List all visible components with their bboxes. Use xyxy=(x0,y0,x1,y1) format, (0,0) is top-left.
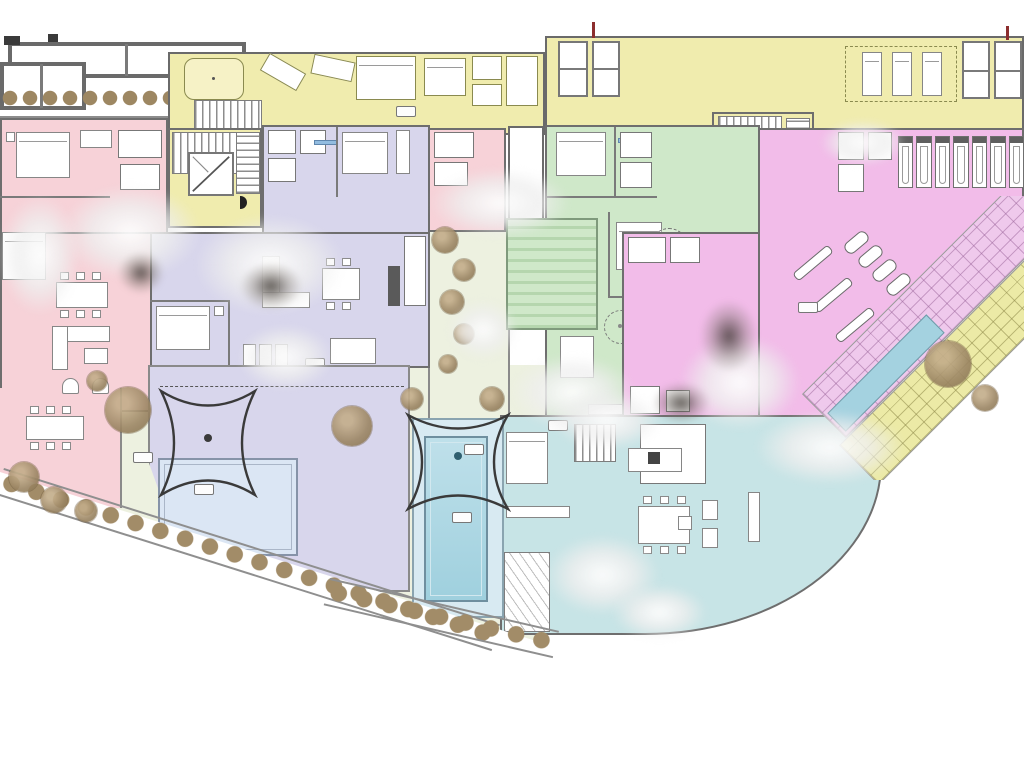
smudge-artifact-dark xyxy=(240,262,302,310)
tree-icon xyxy=(75,500,97,522)
sunbed xyxy=(862,52,882,96)
elevator xyxy=(188,152,234,196)
bed xyxy=(342,132,388,174)
tree-icon xyxy=(480,387,504,411)
smudge-artifact-dark xyxy=(700,300,758,372)
wardrobe xyxy=(80,130,112,148)
partition xyxy=(336,127,338,197)
room-label-chip xyxy=(194,484,214,495)
smudge-artifact xyxy=(0,195,80,315)
plant-room-shelf xyxy=(594,68,618,70)
nightstand xyxy=(6,132,15,142)
bed xyxy=(506,432,548,484)
chair xyxy=(62,442,71,450)
bed xyxy=(156,306,210,350)
shower-stall xyxy=(1009,136,1024,188)
chair xyxy=(326,302,335,310)
chair xyxy=(46,406,55,414)
shower-stall xyxy=(935,136,950,188)
bed xyxy=(556,132,606,176)
bathroom xyxy=(472,56,502,80)
chair xyxy=(342,302,351,310)
kitchen-counter xyxy=(388,266,400,306)
armchair xyxy=(702,528,718,548)
smudge-artifact xyxy=(448,300,518,360)
neighbour-mark-2 xyxy=(48,34,58,42)
shade-sail-icon xyxy=(405,412,511,512)
chair xyxy=(660,496,669,504)
tree-icon xyxy=(87,371,107,391)
tree-icon xyxy=(41,487,67,513)
bathroom xyxy=(620,132,652,158)
room-label-chip xyxy=(464,444,484,455)
survey-tick xyxy=(592,22,595,38)
tree-icon xyxy=(432,227,458,253)
shower-stall xyxy=(953,136,968,188)
tree-icon xyxy=(9,462,39,492)
side-table xyxy=(678,516,692,530)
coffee-table xyxy=(84,348,108,364)
wardrobe xyxy=(506,506,570,518)
survey-tick xyxy=(1006,26,1009,40)
bathroom xyxy=(620,162,652,188)
staff-bed xyxy=(356,56,416,100)
tree-icon xyxy=(972,385,998,411)
wardrobe xyxy=(396,130,410,174)
staff-bed xyxy=(424,58,466,96)
floor-plan-canvas: ♿ xyxy=(0,0,1024,768)
treatment-room xyxy=(670,237,700,263)
partition xyxy=(228,300,230,366)
tree-icon xyxy=(439,355,457,373)
stair-flight xyxy=(236,132,260,194)
plant-room-shelf xyxy=(560,68,586,70)
neighbour-wall xyxy=(125,44,128,76)
chair xyxy=(677,546,686,554)
plant-room-shelf xyxy=(964,70,988,72)
outdoor-table xyxy=(330,338,376,364)
smudge-artifact xyxy=(552,390,662,450)
chair xyxy=(660,546,669,554)
shower-stall xyxy=(972,136,987,188)
chair xyxy=(46,442,55,450)
smudge-artifact xyxy=(820,120,905,165)
room-label-chip xyxy=(452,512,472,523)
chair xyxy=(677,496,686,504)
smudge-artifact xyxy=(612,585,707,640)
tree-icon xyxy=(332,406,372,446)
chair xyxy=(30,442,39,450)
kitchen-unit xyxy=(404,236,426,306)
smudge-artifact xyxy=(430,168,570,238)
window-sill xyxy=(314,140,338,145)
chair xyxy=(60,310,69,318)
elevator-icon xyxy=(190,154,232,194)
chair xyxy=(92,310,101,318)
bed xyxy=(16,132,70,178)
nightstand xyxy=(214,306,224,316)
shower-stall-row xyxy=(898,136,1024,188)
treatment-room xyxy=(628,237,666,263)
shower-stall xyxy=(916,136,931,188)
bathroom xyxy=(268,130,296,154)
armchair xyxy=(702,500,718,520)
jacuzzi-drain-dot xyxy=(212,77,215,80)
tree-icon xyxy=(401,388,423,410)
room-label-chip xyxy=(133,452,153,463)
chair xyxy=(30,406,39,414)
tree-icon xyxy=(925,341,971,387)
shade-sail-icon xyxy=(158,388,258,498)
cabinet xyxy=(748,492,760,542)
shower-stall xyxy=(990,136,1005,188)
sofa xyxy=(52,326,68,370)
room-label-chip xyxy=(396,106,416,117)
smudge-artifact-dark xyxy=(118,252,164,294)
chair xyxy=(643,496,652,504)
partition xyxy=(608,212,610,298)
bathroom xyxy=(434,132,474,158)
sunbed xyxy=(892,52,912,96)
tree-icon xyxy=(105,387,151,433)
armchair xyxy=(62,378,79,394)
bathroom xyxy=(118,130,162,158)
outdoor-dining-table xyxy=(26,416,84,440)
bathroom xyxy=(472,84,502,106)
street-tree-row xyxy=(0,86,170,118)
chair xyxy=(62,406,71,414)
tree-icon xyxy=(453,259,475,281)
plant-room-shelf xyxy=(996,70,1020,72)
smudge-artifact xyxy=(755,410,905,485)
bathroom xyxy=(268,158,296,182)
sunbed xyxy=(922,52,942,96)
neighbour-mark xyxy=(4,36,20,45)
partition xyxy=(614,127,616,197)
smudge-artifact xyxy=(238,325,333,390)
chair xyxy=(76,310,85,318)
bathroom xyxy=(506,56,538,106)
cooktop xyxy=(648,452,660,464)
smudge-artifact-dark xyxy=(652,382,710,424)
spa-bathroom xyxy=(838,164,864,192)
